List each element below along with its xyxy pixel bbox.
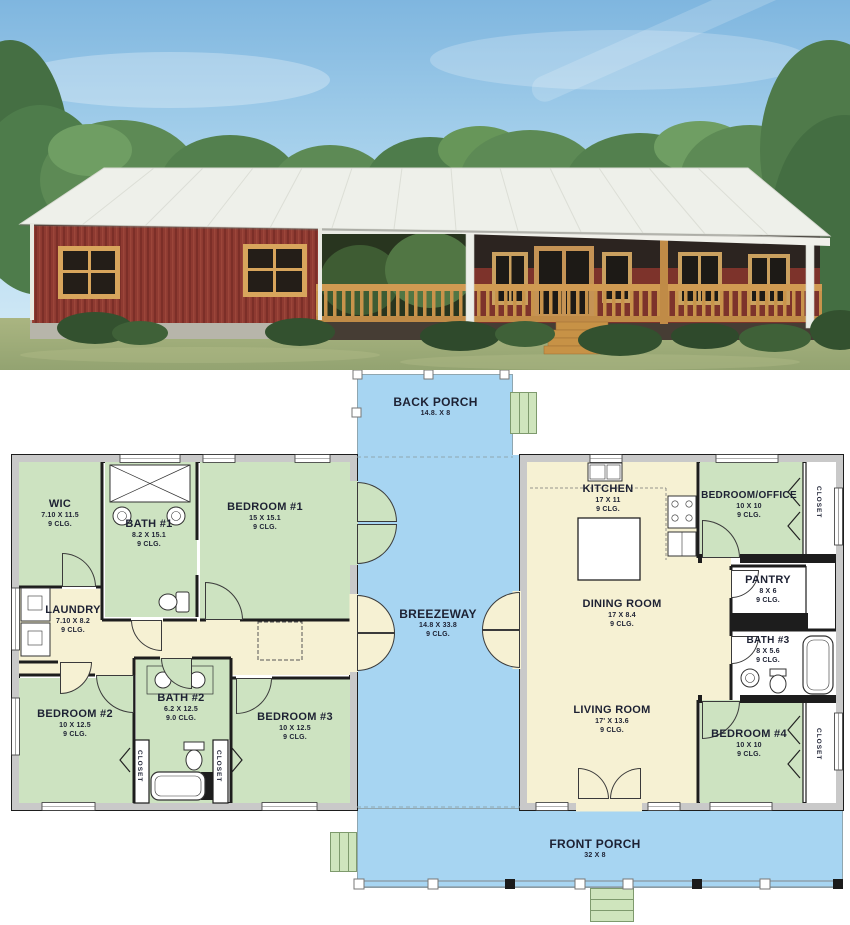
label-closet-3: CLOSET <box>815 486 822 534</box>
label-back-porch: BACK PORCH 14.8. X 8 <box>363 396 508 418</box>
label-pantry: PANTRY 8 X 6 9 CLG. <box>731 574 805 605</box>
label-kitchen: KITCHEN 17 X 11 9 CLG. <box>548 483 668 514</box>
label-bedroom-office: BEDROOM/OFFICE 10 X 10 9 CLG. <box>690 489 808 520</box>
label-breezeway: BREEZEWAY 14.8 X 33.8 9 CLG. <box>363 608 513 639</box>
label-bedroom-4: BEDROOM #4 10 X 10 9 CLG. <box>690 728 808 759</box>
label-bedroom-3: BEDROOM #3 10 X 12.5 9 CLG. <box>235 711 355 742</box>
label-bath-3: BATH #3 8 X 5.6 9 CLG. <box>733 634 803 665</box>
room-foyer <box>660 558 731 700</box>
room-bath-2-lower <box>149 740 213 803</box>
label-bedroom-2: BEDROOM #2 10 X 12.5 9 CLG. <box>15 708 135 739</box>
front-porch-stairs <box>590 888 634 922</box>
floor-plan-page: BACK PORCH 14.8. X 8 BREEZEWAY 14.8 X 33… <box>0 0 850 925</box>
corner-trim <box>318 228 322 320</box>
label-wic: WIC 7.10 X 11.5 9 CLG. <box>20 498 100 529</box>
label-bath-2: BATH #2 6.2 X 12.5 9.0 CLG. <box>140 692 222 723</box>
roof <box>20 168 830 237</box>
front-porch-side-stairs <box>330 832 357 872</box>
label-laundry: LAUNDRY 7.10 X 8.2 9 CLG. <box>33 604 113 635</box>
label-closet-4: CLOSET <box>815 728 822 776</box>
porch-railing <box>316 284 822 322</box>
label-bedroom-1: BEDROOM #1 15 X 15.1 9 CLG. <box>195 501 335 532</box>
house-exterior-rendering <box>0 0 850 370</box>
label-dining-room: DINING ROOM 17 X 8.4 9 CLG. <box>552 598 692 629</box>
label-bath-1: BATH #1 8.2 X 15.1 9 CLG. <box>108 518 190 549</box>
floor-plan: BACK PORCH 14.8. X 8 BREEZEWAY 14.8 X 33… <box>0 370 850 925</box>
label-living-room: LIVING ROOM 17' X 13.6 9 CLG. <box>542 704 682 735</box>
label-closet-2: CLOSET <box>215 750 222 798</box>
label-front-porch: FRONT PORCH 32 X 8 <box>495 838 695 860</box>
downspout <box>30 224 34 320</box>
back-porch-stairs <box>510 392 537 434</box>
label-closet-1: CLOSET <box>136 750 143 798</box>
